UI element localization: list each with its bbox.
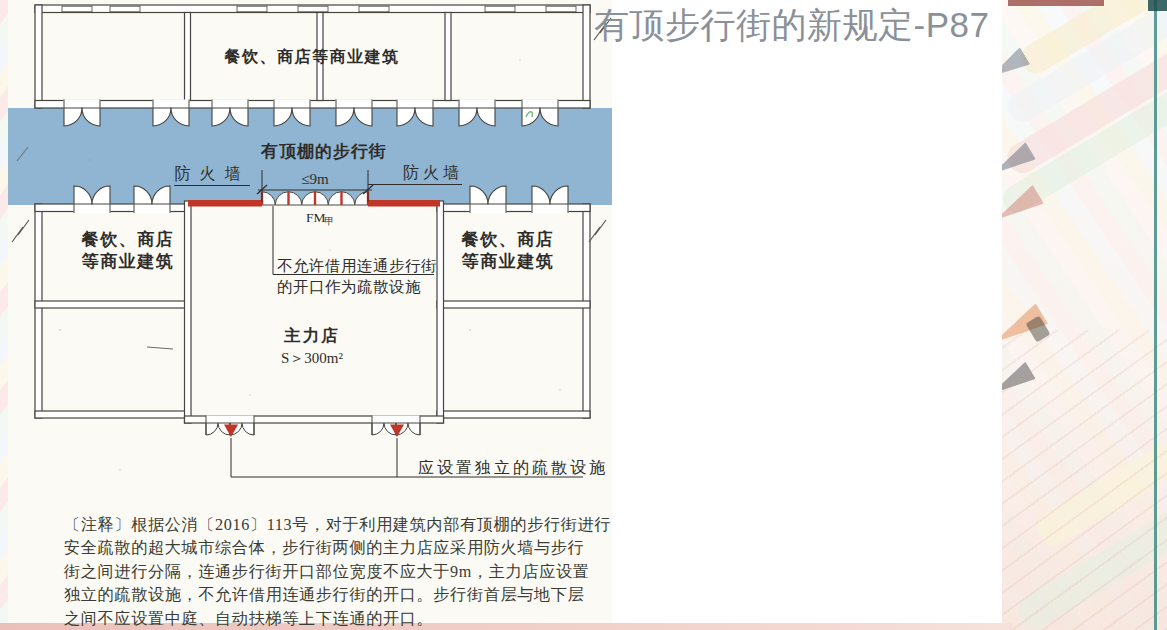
firewall-left-segment [188, 200, 262, 207]
right-building-label-line1: 餐饮、商店 [461, 229, 555, 249]
note-line: 独立的疏散设施，不允许借用连通步行街的开口。步行街首层与地下层 [64, 584, 620, 607]
left-building-label-line2: 等商业建筑 [81, 251, 175, 271]
note-paragraph: 〔注释〕根据公消〔2016〕113号，对于利用建筑内部有顶棚的步行街进行 安全疏… [64, 514, 620, 630]
note-line: 之间不应设置中庭、自动扶梯等上下连通的开口。 [64, 608, 620, 630]
right-building-label-line2: 等商业建筑 [461, 251, 555, 271]
note-line: 安全疏散的超大城市综合体，步行街两侧的主力店应采用防火墙与步行 [64, 537, 620, 560]
main-store-label: 主力店 [283, 326, 340, 345]
presentation-slide: { "slide": { "title": "有顶步行街的新规定-P87" },… [0, 0, 1167, 630]
fire-door-class-label: 甲 [325, 216, 335, 226]
firewall-label-left: 防火墙 [175, 165, 250, 182]
crayon-shape [1032, 387, 1167, 550]
firewall-right-segment [368, 200, 440, 207]
left-building-label-line1: 餐饮、商店 [81, 229, 175, 249]
independent-exit-label: 应设置独立的疏散设施 [418, 459, 608, 476]
crayon-tip [1002, 362, 1036, 403]
firewall-label-right: 防火墙 [403, 164, 463, 181]
window-symbols [62, 6, 576, 12]
street-label: 有顶棚的步行街 [260, 142, 387, 161]
fire-door-label: FM [306, 210, 326, 225]
no-borrow-label-line1: 不允许借用连通步行街 [277, 257, 437, 274]
slide-title: 有顶步行街的新规定-P87 [594, 2, 1154, 49]
no-borrow-label-line2: 的开口作为疏散设施 [277, 278, 421, 295]
note-line: 街之间进行分隔，连通步行街开口部位宽度不应大于9m，主力店应设置 [64, 561, 620, 584]
crayon-shape [1013, 460, 1167, 630]
main-store-area-label: S＞300m² [281, 350, 344, 366]
crayon-background [1002, 0, 1167, 630]
slide-edge-line [1154, 0, 1157, 630]
note-line: 〔注释〕根据公消〔2016〕113号，对于利用建筑内部有顶棚的步行街进行 [64, 514, 620, 537]
top-building-label: 餐饮、商店等商业建筑 [224, 47, 400, 65]
dimension-label: ≤9m [301, 171, 329, 187]
